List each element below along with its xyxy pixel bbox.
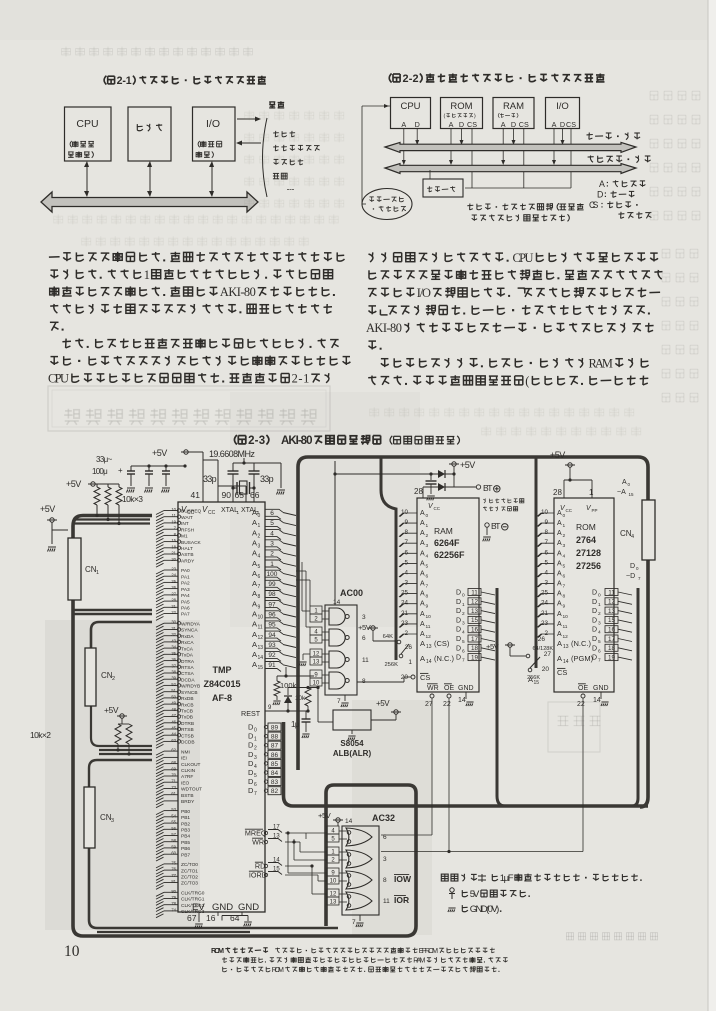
svg-text:RxDB: RxDB bbox=[181, 696, 194, 702]
svg-text:CPU: CPU bbox=[513, 251, 534, 265]
svg-text:8: 8 bbox=[426, 594, 429, 600]
svg-text:84: 84 bbox=[271, 770, 279, 777]
svg-text:10: 10 bbox=[313, 681, 320, 687]
svg-text:21: 21 bbox=[171, 604, 176, 609]
svg-text:D: D bbox=[459, 120, 464, 129]
svg-text:11: 11 bbox=[362, 657, 369, 664]
svg-text:97: 97 bbox=[268, 601, 276, 608]
svg-text:26: 26 bbox=[538, 636, 546, 643]
svg-text:100μ: 100μ bbox=[92, 467, 108, 476]
svg-text:RD: RD bbox=[255, 862, 265, 871]
svg-text:1: 1 bbox=[563, 523, 566, 529]
svg-text:10: 10 bbox=[563, 614, 569, 620]
svg-text:14: 14 bbox=[345, 818, 353, 825]
svg-text:17: 17 bbox=[273, 825, 280, 831]
svg-text:D: D bbox=[511, 120, 516, 129]
svg-text:3: 3 bbox=[383, 856, 387, 863]
svg-text:A: A bbox=[557, 591, 562, 598]
svg-text:D: D bbox=[456, 599, 461, 606]
svg-text:1: 1 bbox=[598, 602, 601, 608]
svg-text:SYNCB: SYNCB bbox=[181, 690, 198, 696]
svg-text:D: D bbox=[592, 617, 597, 624]
svg-text:10: 10 bbox=[258, 615, 264, 621]
svg-text:CTSA: CTSA bbox=[181, 671, 195, 677]
svg-text:D: D bbox=[456, 608, 461, 615]
svg-text:DTRB: DTRB bbox=[181, 721, 194, 727]
svg-text:77: 77 bbox=[171, 873, 176, 878]
svg-text:51: 51 bbox=[171, 688, 176, 693]
svg-text:11: 11 bbox=[383, 898, 390, 905]
svg-text:SYNCA: SYNCA bbox=[181, 628, 198, 634]
svg-text:12: 12 bbox=[426, 634, 432, 640]
svg-text:3: 3 bbox=[362, 614, 366, 621]
svg-text:2: 2 bbox=[544, 630, 548, 637]
svg-text:7: 7 bbox=[426, 584, 429, 590]
svg-text:RAM: RAM bbox=[413, 957, 425, 965]
svg-text:9: 9 bbox=[563, 604, 566, 610]
svg-text:74: 74 bbox=[171, 907, 176, 912]
svg-text:CS: CS bbox=[519, 120, 529, 129]
svg-text:DCDA: DCDA bbox=[181, 677, 195, 683]
svg-text:12: 12 bbox=[471, 599, 479, 606]
svg-text:A: A bbox=[557, 621, 562, 628]
svg-text:100: 100 bbox=[267, 571, 278, 578]
svg-text:91: 91 bbox=[268, 662, 276, 669]
svg-text:83: 83 bbox=[271, 779, 279, 786]
svg-text:61: 61 bbox=[171, 791, 176, 796]
svg-text:2: 2 bbox=[270, 551, 274, 558]
svg-text:71: 71 bbox=[171, 779, 176, 784]
svg-text:7: 7 bbox=[544, 539, 548, 546]
svg-text:86: 86 bbox=[271, 752, 279, 759]
svg-text:31: 31 bbox=[171, 626, 176, 631]
svg-text:39: 39 bbox=[171, 676, 176, 681]
svg-text:AC00: AC00 bbox=[340, 588, 363, 598]
svg-text:44: 44 bbox=[171, 732, 176, 737]
svg-text:ROM: ROM bbox=[450, 101, 472, 112]
svg-text:10k×2: 10k×2 bbox=[30, 730, 51, 740]
svg-text:18: 18 bbox=[171, 544, 176, 549]
svg-text:1μF: 1μF bbox=[500, 873, 514, 884]
svg-text:80: 80 bbox=[171, 889, 176, 894]
svg-text:13: 13 bbox=[330, 900, 337, 906]
svg-text:9: 9 bbox=[258, 604, 261, 610]
svg-text:A: A bbox=[599, 179, 605, 189]
svg-text:PA6: PA6 bbox=[181, 606, 190, 612]
svg-text:24: 24 bbox=[541, 600, 549, 607]
svg-text:8: 8 bbox=[362, 678, 366, 685]
svg-text:48: 48 bbox=[171, 707, 176, 712]
svg-text:A: A bbox=[557, 510, 562, 517]
svg-text:D: D bbox=[415, 120, 420, 129]
svg-text:20: 20 bbox=[401, 674, 409, 681]
svg-text:2: 2 bbox=[258, 533, 261, 539]
svg-text:TxCA: TxCA bbox=[181, 646, 194, 652]
svg-text:PB4: PB4 bbox=[181, 834, 190, 840]
svg-text:PB1: PB1 bbox=[181, 815, 190, 821]
svg-text:IOW: IOW bbox=[394, 874, 412, 884]
svg-text:A: A bbox=[252, 539, 257, 548]
svg-text:DTRA: DTRA bbox=[181, 659, 195, 665]
svg-text:11: 11 bbox=[172, 513, 177, 518]
svg-text:D: D bbox=[456, 645, 461, 652]
svg-text:8: 8 bbox=[383, 877, 387, 884]
svg-text:CTSB: CTSB bbox=[181, 733, 194, 739]
svg-text:PA7: PA7 bbox=[181, 612, 190, 618]
svg-text:45: 45 bbox=[171, 726, 176, 731]
svg-text:5: 5 bbox=[404, 559, 408, 566]
svg-text:6: 6 bbox=[563, 574, 566, 580]
svg-text:A: A bbox=[557, 631, 562, 638]
svg-text:1: 1 bbox=[258, 523, 261, 529]
svg-text:27: 27 bbox=[171, 591, 176, 596]
svg-text:2: 2 bbox=[426, 533, 429, 539]
svg-text:BSTB: BSTB bbox=[181, 793, 194, 799]
svg-text:8: 8 bbox=[563, 594, 566, 600]
svg-text:M1: M1 bbox=[181, 534, 188, 540]
svg-text:16: 16 bbox=[206, 913, 216, 923]
svg-text:4: 4 bbox=[254, 764, 257, 770]
svg-text:11: 11 bbox=[563, 624, 568, 630]
svg-text:A: A bbox=[420, 631, 425, 638]
svg-text:25: 25 bbox=[401, 590, 409, 597]
svg-text:GND: GND bbox=[212, 902, 233, 913]
svg-text:5: 5 bbox=[563, 563, 566, 569]
svg-text:+5V: +5V bbox=[104, 705, 119, 715]
svg-text:64/128K: 64/128K bbox=[533, 646, 554, 652]
svg-text:92: 92 bbox=[268, 652, 276, 659]
svg-text:A: A bbox=[252, 630, 257, 639]
svg-text:PB7: PB7 bbox=[181, 852, 190, 858]
svg-text:7: 7 bbox=[598, 658, 601, 664]
svg-text:0: 0 bbox=[462, 593, 465, 599]
svg-text:CLKOUT: CLKOUT bbox=[181, 762, 201, 768]
svg-text:6: 6 bbox=[462, 648, 465, 654]
svg-text:TxCB: TxCB bbox=[181, 709, 193, 715]
svg-text:RAM: RAM bbox=[434, 526, 453, 536]
svg-text:A: A bbox=[252, 650, 257, 659]
svg-text:2: 2 bbox=[404, 630, 408, 637]
svg-text:27: 27 bbox=[544, 651, 552, 658]
svg-text:47: 47 bbox=[171, 713, 176, 718]
svg-text:D: D bbox=[592, 599, 597, 606]
svg-text:6264F: 6264F bbox=[434, 538, 460, 548]
svg-text:ROM: ROM bbox=[211, 946, 224, 955]
svg-text:A: A bbox=[252, 528, 257, 537]
svg-text:1: 1 bbox=[462, 602, 465, 608]
svg-text:D: D bbox=[560, 120, 565, 129]
svg-text:43: 43 bbox=[171, 638, 176, 643]
svg-text:ZC/TO3: ZC/TO3 bbox=[181, 881, 198, 887]
svg-text:~A: ~A bbox=[617, 489, 626, 496]
svg-text:……: …… bbox=[286, 183, 295, 192]
svg-text:1: 1 bbox=[426, 523, 429, 529]
svg-text:20: 20 bbox=[542, 666, 550, 673]
svg-text:99: 99 bbox=[268, 581, 276, 588]
svg-text:7: 7 bbox=[337, 698, 341, 705]
svg-text:26: 26 bbox=[171, 585, 176, 590]
svg-text:D: D bbox=[630, 563, 635, 570]
svg-text:12: 12 bbox=[258, 635, 264, 641]
svg-text:5: 5 bbox=[544, 559, 548, 566]
svg-text:CS: CS bbox=[420, 673, 430, 682]
svg-text:0: 0 bbox=[598, 593, 601, 599]
svg-text:27256: 27256 bbox=[576, 561, 601, 571]
svg-text:WAIT: WAIT bbox=[181, 515, 193, 521]
svg-text:A: A bbox=[557, 611, 562, 618]
svg-text:22: 22 bbox=[171, 610, 176, 615]
svg-text:95: 95 bbox=[268, 622, 276, 629]
svg-text:RxCB: RxCB bbox=[181, 702, 194, 708]
svg-text:8: 8 bbox=[258, 594, 261, 600]
svg-text:EV: EV bbox=[192, 902, 205, 913]
svg-text:20: 20 bbox=[171, 557, 176, 562]
svg-text:12: 12 bbox=[313, 652, 320, 658]
svg-text:23: 23 bbox=[171, 567, 176, 572]
svg-text:RxCA: RxCA bbox=[181, 640, 194, 646]
svg-text:+5V: +5V bbox=[40, 504, 55, 514]
svg-text:A: A bbox=[557, 530, 562, 537]
svg-text:34: 34 bbox=[171, 645, 176, 650]
svg-text:CS: CS bbox=[566, 120, 576, 129]
svg-text:A7RF: A7RF bbox=[181, 774, 193, 780]
svg-text:19: 19 bbox=[171, 519, 176, 524]
svg-text:A: A bbox=[557, 520, 562, 527]
svg-text:28: 28 bbox=[171, 598, 176, 603]
svg-text:50: 50 bbox=[171, 694, 176, 699]
svg-text:82: 82 bbox=[271, 788, 279, 795]
svg-text:ROM: ROM bbox=[272, 966, 284, 974]
svg-text:10: 10 bbox=[64, 943, 80, 960]
svg-text:(: ( bbox=[525, 374, 529, 388]
svg-text:30: 30 bbox=[171, 620, 176, 625]
svg-text:2-3: 2-3 bbox=[248, 435, 265, 447]
svg-text:7: 7 bbox=[563, 584, 566, 590]
svg-text:17: 17 bbox=[608, 636, 616, 643]
svg-text:57: 57 bbox=[171, 832, 176, 837]
svg-text:PA4: PA4 bbox=[181, 593, 190, 599]
svg-text:15: 15 bbox=[258, 665, 264, 671]
svg-text:14: 14 bbox=[563, 659, 569, 665]
svg-text:60: 60 bbox=[171, 851, 176, 856]
svg-text:19.6608MHz: 19.6608MHz bbox=[209, 449, 255, 459]
svg-text:+5V: +5V bbox=[66, 479, 81, 489]
svg-text:+5V: +5V bbox=[550, 450, 565, 460]
svg-text:0: 0 bbox=[254, 728, 257, 734]
svg-text:13: 13 bbox=[608, 608, 616, 615]
svg-text:33μ~: 33μ~ bbox=[96, 455, 113, 464]
svg-text:A: A bbox=[420, 621, 425, 628]
svg-text:62256F: 62256F bbox=[434, 550, 465, 560]
svg-text:D: D bbox=[456, 590, 461, 597]
svg-text:19: 19 bbox=[608, 654, 616, 661]
svg-text:HALT: HALT bbox=[181, 546, 193, 552]
svg-text:CPU: CPU bbox=[400, 101, 420, 112]
svg-text:21: 21 bbox=[171, 551, 176, 556]
svg-text:13: 13 bbox=[471, 608, 479, 615]
svg-text:+5V: +5V bbox=[376, 699, 390, 708]
svg-text:4: 4 bbox=[270, 530, 274, 537]
svg-text:13: 13 bbox=[563, 644, 569, 650]
svg-text:90: 90 bbox=[222, 490, 232, 500]
svg-text:A: A bbox=[252, 610, 257, 619]
svg-text:A: A bbox=[401, 120, 406, 129]
svg-text:5V: 5V bbox=[470, 889, 480, 900]
svg-text:A: A bbox=[420, 540, 425, 547]
svg-text:A: A bbox=[420, 591, 425, 598]
svg-text:76: 76 bbox=[171, 867, 176, 872]
svg-text:24: 24 bbox=[171, 573, 176, 578]
svg-text:A: A bbox=[420, 611, 425, 618]
svg-text:6: 6 bbox=[270, 510, 274, 517]
svg-text:(CS): (CS) bbox=[434, 639, 450, 648]
svg-text:4: 4 bbox=[462, 630, 465, 636]
svg-text:2: 2 bbox=[462, 611, 465, 617]
svg-text:): ) bbox=[474, 114, 476, 120]
svg-text:+5V: +5V bbox=[318, 811, 331, 820]
svg-text:10: 10 bbox=[401, 509, 409, 516]
svg-text:ROM: ROM bbox=[576, 522, 596, 532]
svg-text:A: A bbox=[252, 559, 257, 568]
svg-text:A: A bbox=[557, 639, 562, 648]
svg-text:3: 3 bbox=[598, 620, 601, 626]
svg-text:12: 12 bbox=[330, 892, 337, 898]
svg-text:98: 98 bbox=[268, 591, 276, 598]
svg-text:5: 5 bbox=[426, 563, 429, 569]
svg-text:+5V: +5V bbox=[460, 460, 475, 470]
svg-text:IEI: IEI bbox=[181, 756, 187, 762]
svg-text:1: 1 bbox=[408, 659, 412, 666]
svg-text:D: D bbox=[456, 655, 461, 662]
svg-text:1: 1 bbox=[270, 561, 274, 568]
svg-text:PA2: PA2 bbox=[181, 581, 190, 587]
svg-text:11: 11 bbox=[258, 625, 263, 631]
svg-text:A: A bbox=[420, 601, 425, 608]
svg-text:A: A bbox=[420, 654, 425, 663]
svg-text:15: 15 bbox=[273, 867, 280, 873]
svg-text:16: 16 bbox=[471, 627, 479, 634]
svg-text:D: D bbox=[592, 627, 597, 634]
svg-text:15: 15 bbox=[171, 538, 176, 543]
svg-text:10k: 10k bbox=[295, 695, 306, 702]
svg-text:5: 5 bbox=[254, 773, 257, 779]
svg-text:41: 41 bbox=[191, 490, 201, 500]
svg-text:A: A bbox=[557, 601, 562, 608]
svg-text:CC: CC bbox=[566, 508, 573, 513]
svg-text:5: 5 bbox=[270, 520, 274, 527]
svg-text:D: D bbox=[456, 617, 461, 624]
svg-text:2: 2 bbox=[254, 746, 257, 752]
svg-text:4: 4 bbox=[258, 554, 261, 560]
svg-text:66: 66 bbox=[250, 490, 260, 500]
svg-text:GND(0V): GND(0V) bbox=[470, 904, 500, 915]
svg-text:PB6: PB6 bbox=[181, 846, 190, 852]
svg-text:6: 6 bbox=[426, 574, 429, 580]
svg-text:GND: GND bbox=[238, 902, 259, 913]
svg-text:8: 8 bbox=[404, 529, 408, 536]
svg-text:10: 10 bbox=[171, 507, 176, 512]
svg-text:12: 12 bbox=[563, 634, 569, 640]
svg-text:D: D bbox=[592, 590, 597, 597]
svg-text:ZC/TO1: ZC/TO1 bbox=[181, 868, 198, 874]
svg-text:PB0: PB0 bbox=[181, 809, 190, 815]
svg-text:53: 53 bbox=[171, 807, 176, 812]
svg-text:CC: CC bbox=[208, 510, 216, 516]
svg-text:3: 3 bbox=[258, 544, 261, 550]
svg-text:3: 3 bbox=[111, 818, 114, 824]
svg-text:13: 13 bbox=[313, 660, 320, 666]
svg-text:18: 18 bbox=[608, 645, 616, 652]
svg-text:PP: PP bbox=[592, 508, 598, 513]
svg-text:12: 12 bbox=[608, 599, 616, 606]
svg-text:A: A bbox=[557, 571, 562, 578]
svg-text:OE: OE bbox=[578, 685, 588, 692]
svg-text:D: D bbox=[592, 645, 597, 652]
svg-text:256K: 256K bbox=[384, 662, 398, 668]
svg-text:15: 15 bbox=[471, 617, 479, 624]
svg-text:RxDA: RxDA bbox=[181, 634, 194, 640]
svg-text:ARDY: ARDY bbox=[181, 559, 195, 565]
svg-text:10: 10 bbox=[541, 509, 549, 516]
svg-text:A: A bbox=[420, 550, 425, 557]
svg-text:ZC/TO2: ZC/TO2 bbox=[181, 875, 198, 881]
svg-text:33p: 33p bbox=[203, 474, 217, 484]
svg-text:4: 4 bbox=[404, 570, 408, 577]
svg-text:55: 55 bbox=[171, 820, 176, 825]
svg-text:A: A bbox=[252, 599, 257, 608]
svg-text:GND: GND bbox=[458, 685, 474, 692]
svg-text:S8054: S8054 bbox=[340, 739, 364, 748]
svg-text:70: 70 bbox=[171, 773, 176, 778]
svg-text:(N.C.): (N.C.) bbox=[571, 639, 591, 648]
svg-text:I/O: I/O bbox=[417, 286, 431, 300]
svg-text:BUSACK: BUSACK bbox=[181, 540, 202, 546]
svg-text:D: D bbox=[592, 655, 597, 662]
svg-text:94: 94 bbox=[268, 632, 276, 639]
svg-text:1: 1 bbox=[144, 268, 150, 282]
svg-text:A: A bbox=[557, 581, 562, 588]
svg-text:1: 1 bbox=[254, 737, 257, 743]
svg-text:7: 7 bbox=[254, 791, 257, 797]
svg-text:3: 3 bbox=[563, 543, 566, 549]
svg-text:OE: OE bbox=[444, 685, 454, 692]
svg-text:9: 9 bbox=[426, 604, 429, 610]
svg-text:BRDY: BRDY bbox=[181, 799, 195, 805]
svg-text:Z84C015: Z84C015 bbox=[203, 679, 240, 689]
svg-text:7: 7 bbox=[258, 584, 261, 590]
svg-text:TMP: TMP bbox=[213, 665, 232, 675]
svg-text:(: ( bbox=[444, 114, 446, 120]
svg-text:14: 14 bbox=[258, 655, 264, 661]
svg-text:6: 6 bbox=[598, 648, 601, 654]
svg-text:RFSH: RFSH bbox=[181, 527, 195, 533]
svg-text:RTSB: RTSB bbox=[181, 727, 194, 733]
svg-text:75: 75 bbox=[171, 860, 176, 865]
svg-text:A: A bbox=[420, 510, 425, 517]
svg-text:PA1: PA1 bbox=[181, 574, 190, 580]
svg-text:CPU: CPU bbox=[76, 118, 98, 130]
svg-text:ALB(ALR): ALB(ALR) bbox=[333, 749, 372, 758]
svg-text:TxDA: TxDA bbox=[181, 653, 194, 659]
svg-text:87: 87 bbox=[271, 743, 279, 750]
svg-text:(PGM): (PGM) bbox=[571, 654, 594, 663]
svg-text:17: 17 bbox=[471, 636, 479, 643]
svg-text:28: 28 bbox=[414, 487, 423, 496]
svg-text:35: 35 bbox=[171, 651, 176, 656]
svg-text:A: A bbox=[252, 508, 257, 517]
svg-text:85: 85 bbox=[271, 761, 279, 768]
svg-text:1μ: 1μ bbox=[291, 720, 300, 729]
